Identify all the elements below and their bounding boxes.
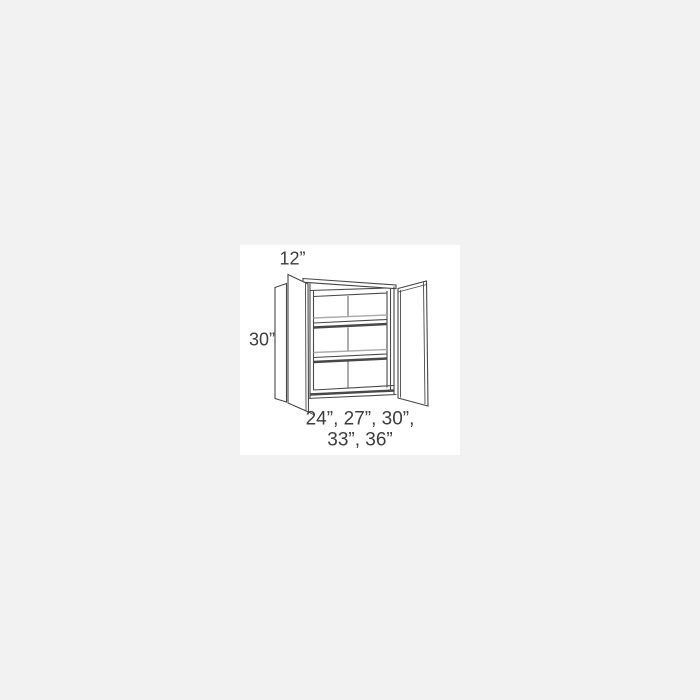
- left-door-edge-line: [306, 284, 307, 411]
- shelf-2-front-top-edge: [314, 354, 388, 358]
- cabinet-left-side-panel: [275, 284, 287, 403]
- shelf-1-front-top-edge: [314, 320, 388, 324]
- width-options-line-2: 33”, 36”: [327, 430, 392, 451]
- cabinet-top-edge: [303, 279, 396, 289]
- shelf-1-back-edge: [314, 315, 388, 318]
- product-image-area: 12” 30” 24”, 27”, 30”, 33”, 36”: [240, 245, 460, 455]
- cabinet-bottom-front-band: [310, 391, 395, 395]
- cabinet-diagram: 12” 30” 24”, 27”, 30”, 33”, 36”: [240, 245, 460, 455]
- depth-dimension-label: 12”: [279, 249, 305, 269]
- page-background: 12” 30” 24”, 27”, 30”, 33”, 36”: [0, 0, 700, 700]
- cabinet-top-rail-line: [310, 288, 387, 291]
- cabinet-bottom-interior-edge: [314, 386, 395, 391]
- shelf-1-front-bottom-edge: [314, 324, 388, 328]
- cabinet-top-underside-line: [314, 293, 388, 297]
- width-options-line-1: 24”, 27”, 30”,: [306, 409, 415, 430]
- shelf-2-back-edge: [314, 350, 388, 353]
- height-dimension-label: 30”: [249, 330, 275, 350]
- shelf-2-front-bottom-edge: [314, 359, 388, 363]
